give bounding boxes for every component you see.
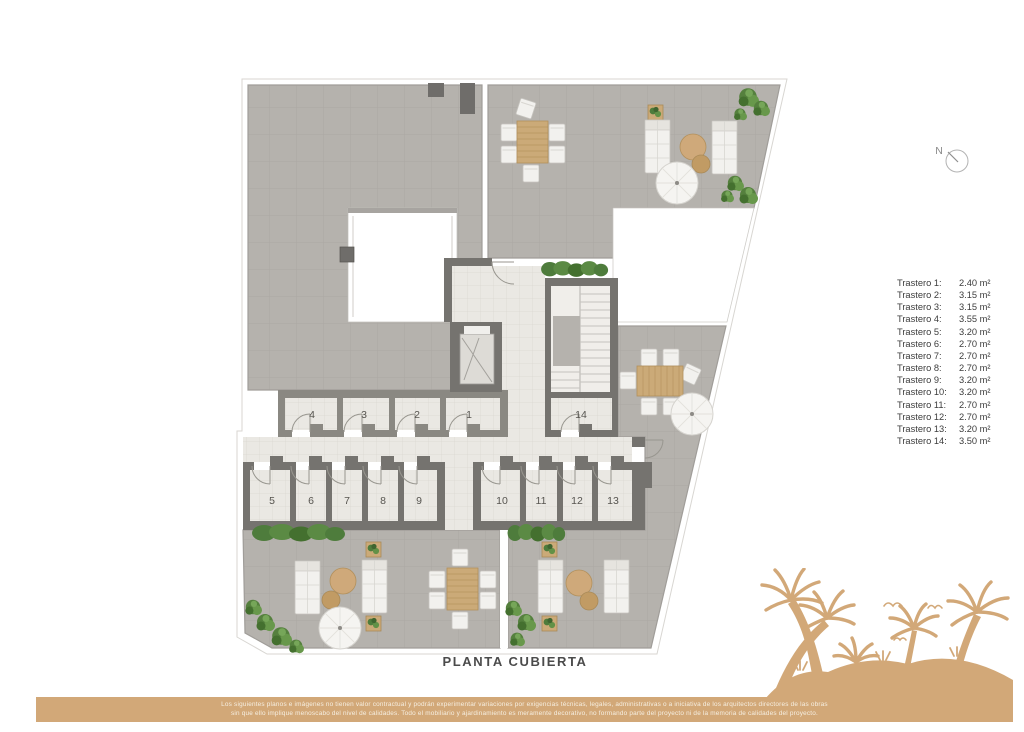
legend-label: Trastero 13: [897,423,959,435]
legend-row: Trastero 5:3.20 m² [897,326,991,338]
room-number-3: 3 [361,409,367,421]
legend-row: Trastero 13:3.20 m² [897,423,991,435]
legend-row: Trastero 12:2.70 m² [897,411,991,423]
room-number-5: 5 [269,495,275,507]
room-number-6: 6 [308,495,314,507]
legend-area: 3.20 m² [959,374,991,386]
roof-vent-icon [460,83,475,114]
legend-row: Trastero 14:3.50 m² [897,435,991,447]
legend-label: Trastero 5: [897,326,959,338]
legend-area: 2.70 m² [959,399,991,411]
legend-row: Trastero 1:2.40 m² [897,277,991,289]
legend-row: Trastero 11:2.70 m² [897,399,991,411]
legend-row: Trastero 4:3.55 m² [897,313,991,325]
legend-area: 3.15 m² [959,301,991,313]
legend-area: 3.50 m² [959,435,991,447]
legend-area: 3.55 m² [959,313,991,325]
legend-label: Trastero 2: [897,289,959,301]
legend-label: Trastero 14: [897,435,959,447]
side-table [692,155,710,173]
legend-row: Trastero 6:2.70 m² [897,338,991,350]
legend: Trastero 1:2.40 m² Trastero 2:3.15 m² Tr… [897,277,991,447]
legend-area: 3.20 m² [959,423,991,435]
legend-area: 3.20 m² [959,386,991,398]
legend-area: 3.20 m² [959,326,991,338]
north-label: N [935,145,943,157]
page: 1 2 3 4 5 6 7 8 9 10 11 12 13 14 [0,0,1024,732]
roof-vent-icon [428,83,444,97]
legend-area: 2.70 m² [959,338,991,350]
legend-area: 2.70 m² [959,362,991,374]
legend-area: 3.15 m² [959,289,991,301]
room-number-13: 13 [607,495,619,507]
legend-label: Trastero 1: [897,277,959,289]
terrace-gap [500,530,508,648]
legend-area: 2.70 m² [959,350,991,362]
staircase [551,286,610,392]
plan-title: PLANTA CUBIERTA [390,654,640,669]
umbrella-icon [656,162,698,204]
side-table [330,568,356,594]
courtyard-void-1 [340,208,457,322]
umbrella-icon [319,607,361,649]
hedge [541,261,608,277]
room-number-7: 7 [344,495,350,507]
side-table [322,591,340,609]
room-number-10: 10 [496,495,508,507]
north-arrow: N [935,145,968,172]
legend-row: Trastero 10:3.20 m² [897,386,991,398]
legend-label: Trastero 10: [897,386,959,398]
legend-label: Trastero 6: [897,338,959,350]
courtyard-void-2 [613,208,754,322]
room-number-12: 12 [571,495,583,507]
legend-row: Trastero 7:2.70 m² [897,350,991,362]
room-number-11: 11 [536,495,547,507]
legend-label: Trastero 12: [897,411,959,423]
room-number-8: 8 [380,495,386,507]
legend-row: Trastero 2:3.15 m² [897,289,991,301]
legend-label: Trastero 7: [897,350,959,362]
room-number-14: 14 [575,409,587,421]
legend-label: Trastero 8: [897,362,959,374]
room-number-9: 9 [416,495,422,507]
legend-row: Trastero 3:3.15 m² [897,301,991,313]
legend-area: 2.40 m² [959,277,991,289]
side-table [580,592,598,610]
legend-label: Trastero 4: [897,313,959,325]
umbrella-icon [671,393,713,435]
legend-label: Trastero 11: [897,399,959,411]
disclaimer-banner: Los siguientes planos e imágenes no tien… [36,697,1013,722]
elevator [450,322,502,392]
legend-label: Trastero 9: [897,374,959,386]
room-number-4: 4 [309,409,315,421]
legend-row: Trastero 8:2.70 m² [897,362,991,374]
disclaimer-line-1: Los siguientes planos e imágenes no tien… [36,701,1013,710]
disclaimer-line-2: sin que ello implique menoscabo del nive… [36,710,1013,719]
legend-area: 2.70 m² [959,411,991,423]
legend-row: Trastero 9:3.20 m² [897,374,991,386]
chimney-icon [340,247,354,262]
room-number-2: 2 [414,409,420,421]
legend-label: Trastero 3: [897,301,959,313]
room-number-1: 1 [466,409,472,421]
